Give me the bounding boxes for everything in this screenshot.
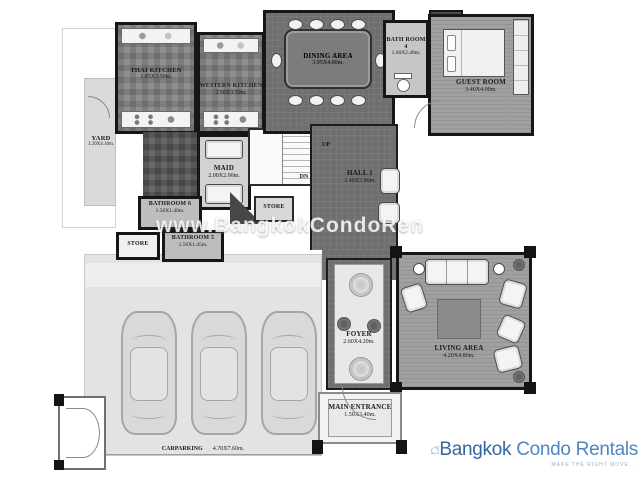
thai-kitchen-room: THAI KITCHEN 1.85X3.50m.	[115, 22, 197, 134]
western-kitchen-label: WESTERN KITCHEN 2.50X3.50m.	[196, 83, 266, 96]
watermark: www.BangkokCondoRen	[140, 214, 440, 238]
living-room: LIVING AREA 4.20X4.80m.	[396, 252, 532, 390]
room-name: STORE	[256, 204, 292, 211]
pillow	[447, 56, 456, 72]
side-table	[413, 263, 425, 275]
carport-area: CARPARKING 4.70X7.60m.	[84, 254, 322, 456]
blanket-line	[461, 30, 462, 76]
room-dims: 2.50X3.50m.	[196, 90, 266, 97]
wall-column	[390, 246, 402, 258]
room-name: YARD	[79, 135, 123, 142]
service-floor	[143, 132, 197, 198]
car	[121, 311, 177, 435]
foyer-room: FOYER 2.60X4.20m.	[334, 264, 384, 384]
wall-column	[524, 382, 536, 394]
carport-roof-band	[85, 263, 321, 287]
western-kitchen-room: WESTERN KITCHEN 2.50X3.50m.	[197, 32, 265, 134]
yard-label: YARD 1.20X4.10m.	[79, 135, 123, 148]
sink-counter	[203, 38, 259, 53]
car-rear	[272, 410, 306, 419]
room-name: CARPARKING	[162, 446, 203, 452]
floor-plan: CARPARKING 4.70X7.60m. YARD 1.20X4.10m. …	[0, 0, 640, 480]
maid-label: MAID 2.00X2.90m.	[200, 165, 248, 179]
bed	[443, 29, 505, 77]
car-windshield	[272, 335, 306, 346]
room-name: BATHROOM 6	[141, 201, 199, 208]
room-name: THAI KITCHEN	[118, 67, 194, 74]
car	[261, 311, 317, 435]
door-arc	[66, 408, 100, 458]
room-name: FOYER	[335, 331, 383, 339]
room-dims: 2.60X4.20m.	[335, 339, 383, 346]
brand-name: Bangkok Condo Rentals MAKE THE RIGHT MOV…	[439, 439, 638, 461]
store-label: STORE	[256, 204, 292, 211]
bathroom4-room: BATH ROOM 4 1.60X2.40m.	[383, 20, 429, 98]
dining-chair	[309, 19, 324, 30]
room-dims: 2.00X2.90m.	[200, 173, 248, 180]
armchair	[495, 313, 527, 345]
wall-column	[54, 460, 64, 470]
carport-baseline	[85, 454, 321, 455]
dining-table: DINING AREA 3.95X4.00m.	[284, 29, 372, 89]
toilet	[397, 79, 410, 92]
carparking-label: CARPARKING 4.70X7.60m.	[85, 437, 321, 455]
guest-room-label: GUEST ROOM 3.40X4.00m.	[431, 79, 531, 93]
room-dims: 1.50X1.45m.	[165, 242, 221, 248]
dining-chair	[330, 19, 345, 30]
car	[191, 311, 247, 435]
room-name: WESTERN KITCHEN	[196, 83, 266, 90]
car-rear	[132, 410, 166, 419]
armchair	[400, 282, 429, 314]
rug	[437, 299, 481, 339]
car-windshield	[202, 335, 236, 346]
side-table	[493, 263, 505, 275]
tagline: MAKE THE RIGHT MOVE...	[551, 462, 636, 468]
dining-chair	[351, 19, 366, 30]
stairs-up-text: UP	[316, 142, 336, 149]
door-arc	[414, 100, 442, 128]
dining-room: DINING AREA 3.95X4.00m.	[263, 10, 395, 134]
up-label: UP	[316, 142, 336, 149]
plant	[513, 259, 525, 271]
bathroom4-label: BATH ROOM 4 1.60X2.40m.	[386, 37, 426, 56]
dn-label: DN	[294, 174, 314, 181]
wall-column	[54, 394, 64, 406]
logo: Bangkok Condo Rentals MAKE THE RIGHT MOV…	[430, 424, 638, 476]
pillow	[447, 35, 456, 51]
foyer-label: FOYER 2.60X4.20m.	[335, 331, 383, 345]
car-cabin	[130, 347, 168, 401]
brand-light-text: Condo Rentals	[511, 439, 638, 460]
planter	[337, 317, 351, 331]
room-dims: 3.95X4.00m.	[312, 60, 344, 66]
car-cabin	[200, 347, 238, 401]
wall-column	[524, 246, 536, 258]
dining-chair	[309, 95, 324, 106]
room-name: LIVING AREA	[409, 345, 509, 353]
dining-chair	[288, 19, 303, 30]
dining-chair	[271, 53, 282, 68]
floor-rosette	[349, 357, 373, 381]
stairs-dn-text: DN	[294, 174, 314, 181]
store-label: STORE	[119, 241, 157, 248]
wall-column	[312, 440, 323, 454]
guest-room: GUEST ROOM 3.40X4.00m.	[428, 14, 534, 136]
floor-rosette	[349, 273, 373, 297]
car-rear	[202, 410, 236, 419]
stove-counter	[203, 111, 259, 128]
room-dims: 1.20X4.10m.	[79, 142, 123, 148]
living-area-label: LIVING AREA 4.20X4.80m.	[409, 345, 509, 359]
bathroom6-label: BATHROOM 6 1.50X1.40m.	[141, 201, 199, 214]
sofa	[425, 259, 489, 285]
thai-kitchen-label: THAI KITCHEN 1.85X3.50m.	[118, 67, 194, 81]
room-name: DINING AREA	[303, 52, 352, 60]
brand-dark-text: Bangkok	[439, 439, 511, 460]
maid-room: MAID 2.00X2.90m.	[197, 134, 251, 210]
stove-counter	[121, 111, 191, 128]
room-name: MAID	[200, 165, 248, 173]
car-cabin	[270, 347, 308, 401]
room-dims: 3.40X4.00m.	[431, 87, 531, 94]
car-windshield	[132, 335, 166, 346]
room-name: BATH ROOM 4	[386, 37, 426, 50]
side-porch	[58, 396, 106, 470]
maid-bed	[205, 140, 243, 159]
dining-chair	[330, 95, 345, 106]
room-dims: 1.50X1.40m.	[141, 208, 199, 214]
armchair	[498, 278, 528, 310]
room-dims: 1.60X2.40m.	[386, 50, 426, 56]
room-dims: 1.85X3.50m.	[118, 74, 194, 81]
sink-counter	[121, 28, 191, 44]
wall-column	[396, 440, 407, 454]
room-name: STORE	[119, 241, 157, 248]
house-icon	[430, 430, 439, 470]
hall-armchair	[380, 168, 400, 194]
room-dims: 4.70X7.60m.	[213, 446, 245, 452]
dining-chair	[288, 95, 303, 106]
room-name: GUEST ROOM	[431, 79, 531, 87]
dining-chair	[351, 95, 366, 106]
room-dims: 4.20X4.80m.	[409, 353, 509, 360]
